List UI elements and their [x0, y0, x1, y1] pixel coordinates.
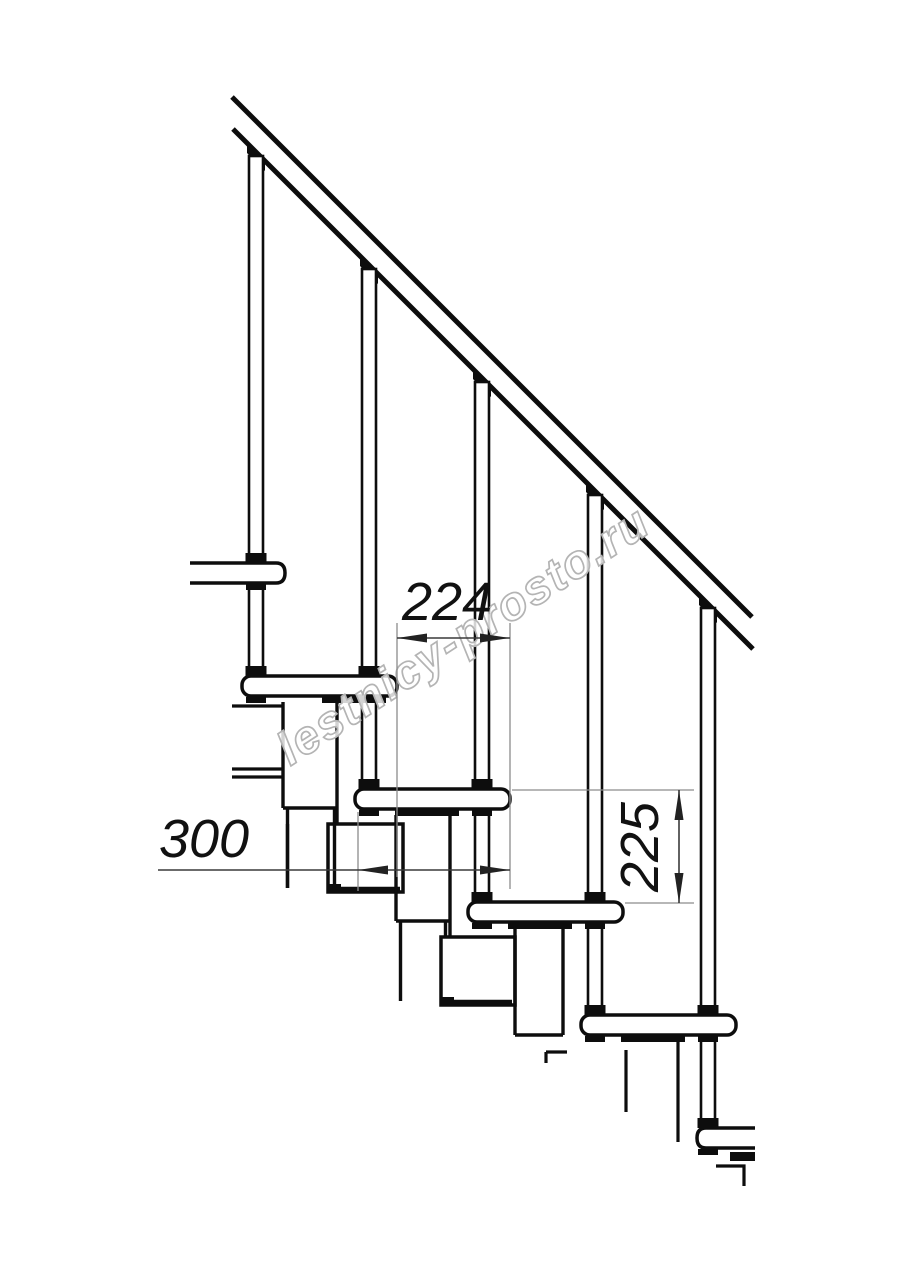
- baluster: [247, 145, 265, 676]
- tread: [355, 789, 510, 809]
- module-cut-stubs: [546, 1052, 567, 1063]
- drawing-canvas: lestnicy-prosto.ru 224 300 225: [0, 0, 914, 1280]
- tread: [581, 1015, 736, 1035]
- module-neck: [515, 929, 563, 1035]
- arrow-up-icon: [675, 790, 684, 820]
- baluster: [699, 597, 717, 1128]
- dimension-value: 225: [610, 801, 670, 893]
- staircase-technical-drawing: lestnicy-prosto.ru 224 300 225: [0, 0, 914, 1280]
- tread-bottom-cut: [697, 1128, 755, 1148]
- handrail: [232, 97, 753, 649]
- module-box: [288, 824, 404, 893]
- handrail-bottom-edge: [233, 129, 753, 649]
- module-cut-stubs: [716, 1166, 744, 1186]
- module-cut-stubs: [626, 1040, 678, 1142]
- dimension-value: 300: [159, 809, 249, 869]
- arrow-right-icon: [480, 866, 510, 875]
- tread-top-cut: [190, 563, 285, 583]
- arrow-down-icon: [675, 873, 684, 903]
- handrail-top-edge: [232, 97, 752, 617]
- module-box: [441, 937, 515, 1006]
- tread: [468, 902, 623, 922]
- dimension-value: 224: [401, 572, 492, 632]
